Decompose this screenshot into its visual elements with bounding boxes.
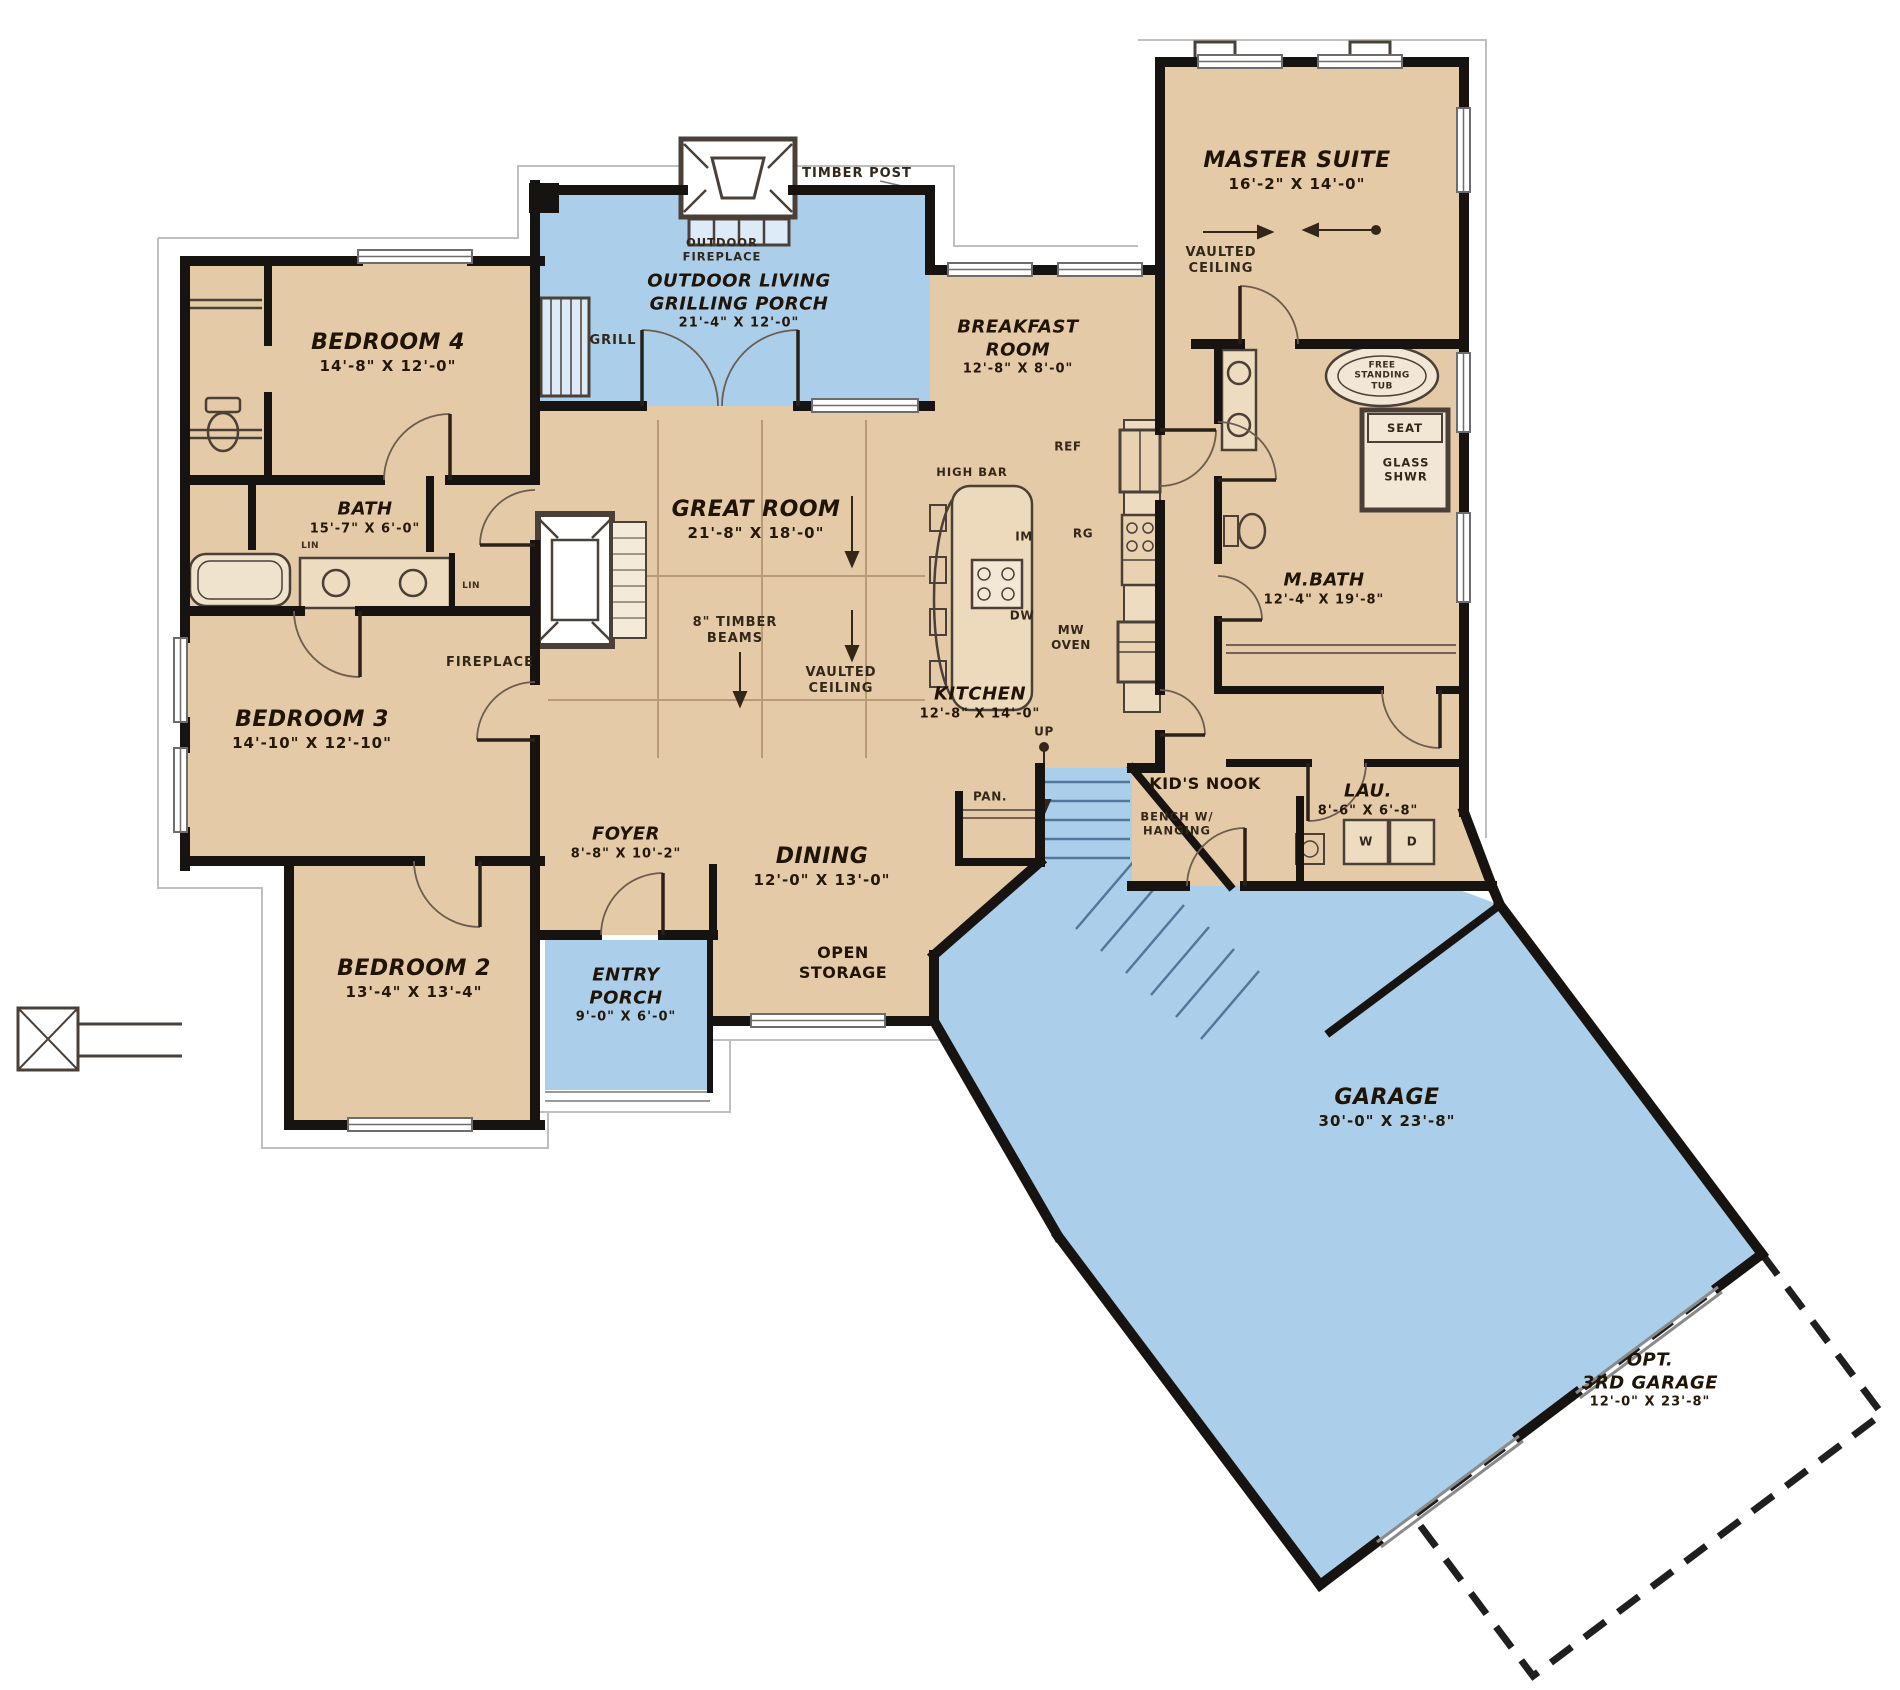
cooktop-icon: [972, 560, 1022, 608]
floor-plan-drawing: [0, 0, 1900, 1690]
outdoor-fireplace-icon: [681, 139, 795, 217]
vaulted-ceiling-note-master: VAULTED CEILING: [1185, 245, 1256, 278]
room-label-dining: DINING 12'-0" X 13'-0": [754, 843, 891, 889]
mw-oven-label: MW OVEN: [1051, 623, 1091, 653]
room-label-open-storage: OPEN STORAGE: [799, 943, 887, 983]
high-bar-label: HIGH BAR: [936, 465, 1008, 479]
bench-label: BENCH W/ HANGING: [1140, 810, 1213, 839]
linen-label-2: LIN: [462, 581, 480, 591]
timber-post-label: TIMBER POST: [802, 166, 912, 182]
freestanding-tub-label: FREE STANDING TUB: [1354, 360, 1409, 391]
grill-icon: [541, 298, 589, 396]
timber-beams-note: 8" TIMBER BEAMS: [693, 615, 778, 648]
grill-label: GRILL: [589, 333, 636, 349]
room-label-bedroom2: BEDROOM 2 13'-4" X 13'-4": [337, 955, 491, 1001]
room-label-bath: BATH 15'-7" X 6'-0": [310, 499, 421, 538]
room-label-kids-nook: KID'S NOOK: [1149, 774, 1261, 794]
up-label: UP: [1034, 725, 1054, 740]
ref-label: REF: [1054, 440, 1081, 455]
dryer-label: D: [1407, 835, 1418, 850]
linen-label-1: LIN: [301, 541, 319, 551]
pantry-label: PAN.: [973, 790, 1007, 805]
fireplace-icon: [538, 514, 612, 646]
vaulted-ceiling-note-great-room: VAULTED CEILING: [805, 665, 876, 698]
room-label-garage: GARAGE 30'-0" X 23'-8": [1319, 1084, 1456, 1130]
glass-shower-label: GLASS SHWR: [1383, 456, 1430, 485]
room-label-master-suite: MASTER SUITE 16'-2" X 14'-0": [1203, 147, 1390, 193]
seat-label: SEAT: [1387, 421, 1423, 435]
room-label-great-room: GREAT ROOM 21'-8" X 18'-0": [672, 496, 841, 542]
room-label-master-bath: M.BATH 12'-4" X 19'-8": [1264, 570, 1385, 609]
outdoor-fireplace-label: OUTDOOR FIREPLACE: [683, 236, 762, 265]
room-label-breakfast: BREAKFAST ROOM 12'-8" X 8'-0": [957, 316, 1078, 377]
dishwasher-label: DW: [1010, 609, 1034, 624]
room-label-opt-third-garage: OPT. 3RD GARAGE 12'-0" X 23'-8": [1582, 1349, 1718, 1410]
fireplace-label: FIREPLACE: [446, 655, 534, 671]
room-label-kitchen: KITCHEN 12'-8" X 14'-0": [920, 684, 1041, 723]
room-label-laundry: LAU. 8'-6" X 6'-8": [1318, 781, 1419, 820]
room-label-bedroom3: BEDROOM 3 14'-10" X 12'-10": [232, 706, 392, 752]
floor-plan: BEDROOM 4 14'-8" X 12'-0" BATH 15'-7" X …: [0, 0, 1900, 1690]
washer-label: W: [1359, 835, 1373, 850]
range-label: RG: [1073, 527, 1093, 542]
room-label-foyer: FOYER 8'-8" X 10'-2": [571, 824, 682, 863]
room-label-grilling-porch: OUTDOOR LIVING GRILLING PORCH 21'-4" X 1…: [647, 270, 831, 331]
room-label-bedroom4: BEDROOM 4 14'-8" X 12'-0": [311, 329, 465, 375]
ice-maker-label: IM: [1015, 530, 1033, 545]
room-label-entry-porch: ENTRY PORCH 9'-0" X 6'-0": [576, 964, 677, 1025]
